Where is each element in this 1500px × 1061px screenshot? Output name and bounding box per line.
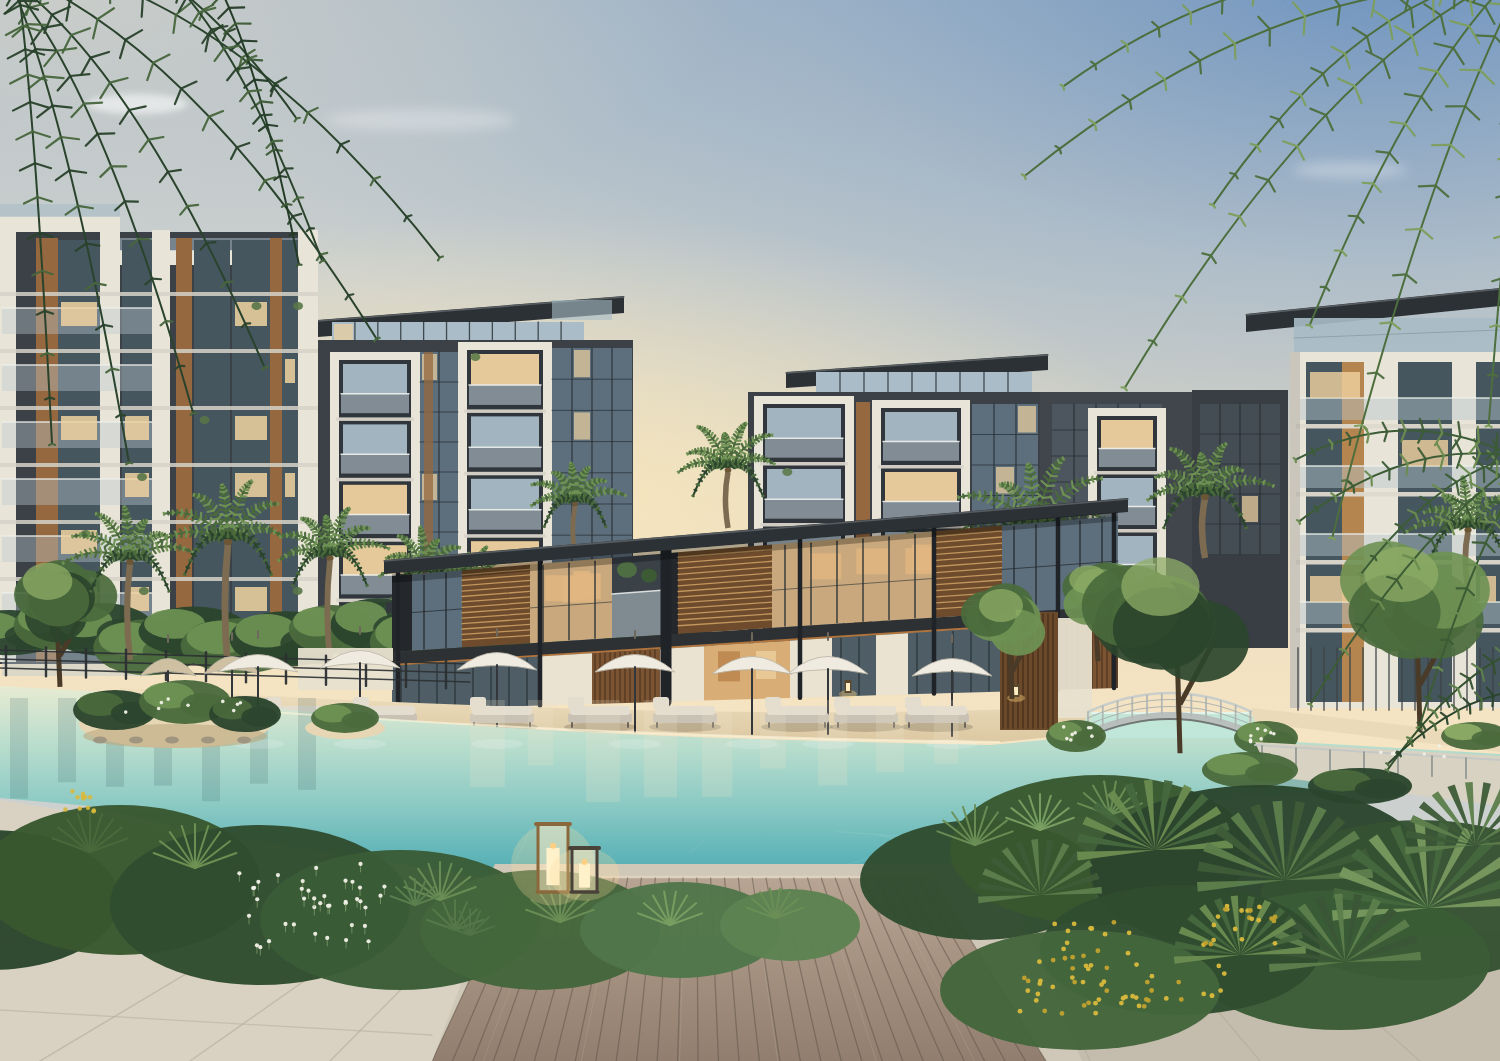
palm-leaflet — [1025, 478, 1031, 480]
floor-slab — [1094, 471, 1160, 475]
palm-leaflet — [108, 561, 110, 565]
palm-leaflet — [1254, 478, 1256, 481]
palm-leaflet — [1490, 3, 1500, 4]
palm-leaflet — [754, 454, 756, 458]
white-flower — [322, 894, 326, 898]
palm-leaflet — [298, 573, 299, 574]
palm-leaflet — [401, 537, 402, 538]
palm-leaflet — [1237, 467, 1238, 469]
palm-leaflet — [220, 497, 225, 498]
palm-leaflet — [601, 479, 602, 480]
yellow-flower — [1111, 920, 1116, 925]
yellow-flower — [81, 796, 85, 800]
palm-leaflet — [123, 531, 128, 533]
palm-leaflet — [1239, 476, 1240, 481]
palm-leaflet — [98, 133, 115, 134]
balcony-glass — [612, 590, 662, 638]
cloud — [1292, 162, 1408, 178]
palm-leaflet — [256, 544, 260, 545]
palm-leaflet — [697, 427, 698, 428]
palm-leaflet — [703, 475, 704, 477]
palm-crown — [126, 559, 134, 565]
balcony-glass — [341, 515, 409, 534]
palm-leaflet — [274, 530, 276, 532]
yellow-flower — [1179, 997, 1184, 1002]
palm-leaflet — [1268, 483, 1269, 484]
palm-leaflet — [338, 547, 339, 552]
palm-leaflet — [1072, 481, 1073, 487]
palm-leaflet — [1222, 0, 1223, 13]
yellow-flower — [88, 795, 92, 799]
palm-leaflet — [194, 554, 196, 556]
palm-leaflet — [1207, 488, 1208, 493]
palm-leaflet — [122, 523, 127, 524]
palm-leaflet — [1178, 454, 1181, 456]
palm-leaflet — [607, 488, 608, 491]
white-flower — [247, 914, 251, 918]
palm-leaflet — [345, 531, 347, 536]
white-flower — [1070, 733, 1074, 737]
palm-leaflet — [1172, 450, 1173, 451]
palm-leaflet — [618, 492, 619, 493]
palm-leaflet — [123, 514, 126, 515]
palm-leaflet — [301, 568, 302, 570]
yellow-flower — [1164, 996, 1169, 1001]
palm-trunk — [1202, 499, 1205, 558]
palm-leaflet — [202, 502, 206, 504]
yellow-flower — [78, 806, 82, 810]
palm-leaflet — [324, 522, 328, 523]
lit-window — [1310, 372, 1360, 398]
palm-leaflet — [308, 524, 311, 525]
palm-leaflet — [1470, 522, 1471, 526]
palm-leaflet — [1249, 476, 1251, 480]
palm-leaflet — [187, 205, 198, 206]
palm-leaflet — [457, 546, 458, 547]
balcony-plant — [139, 587, 149, 595]
palm-leaflet — [394, 556, 395, 558]
daybed-backrest — [568, 697, 584, 709]
palm-leaflet — [99, 516, 101, 517]
palm-leaflet — [367, 527, 368, 528]
palm-leaflet — [1461, 489, 1465, 490]
yellow-flower — [1065, 940, 1070, 945]
palm-leaflet — [50, 397, 55, 399]
palm-leaflet — [256, 505, 257, 510]
palm-leaflet — [147, 534, 148, 539]
palm-trunk — [225, 544, 228, 668]
white-flower — [382, 884, 386, 888]
floor-slab — [0, 406, 318, 410]
yellow-flower — [1119, 1001, 1124, 1006]
palm-leaflet — [1353, 486, 1354, 493]
yellow-flower — [70, 789, 74, 793]
palm-leaflet — [132, 553, 133, 558]
white-flower — [251, 886, 255, 890]
palm-leaflet — [120, 415, 125, 416]
palm-leaflet — [604, 488, 605, 491]
palm-leaflet — [197, 549, 199, 552]
interior-light — [563, 577, 597, 603]
palm-leaflet — [1176, 504, 1178, 506]
palm-leaflet — [1490, 502, 1500, 503]
palm-leaflet — [597, 488, 598, 492]
palm-leaflet — [199, 498, 201, 500]
palm-leaflet — [108, 528, 113, 529]
palm-leaflet — [290, 535, 291, 537]
rock — [129, 737, 143, 744]
white-flower — [1422, 752, 1426, 756]
palm-leaflet — [204, 504, 209, 506]
balcony-plant — [252, 302, 262, 310]
palm-leaflet — [745, 441, 747, 446]
palm-trunk — [127, 564, 130, 660]
palm-leaflet — [1438, 510, 1440, 513]
palm-leaflet — [700, 451, 702, 454]
palm-leaflet — [122, 527, 127, 528]
lit-window — [125, 416, 149, 440]
palm-leaflet — [97, 578, 98, 579]
yellow-flower — [1081, 953, 1086, 958]
palm-leaflet — [758, 455, 760, 458]
palm-leaflet — [94, 584, 95, 585]
white-flower — [255, 897, 259, 901]
palm-leaflet — [1200, 60, 1201, 73]
palm-leaflet — [1350, 438, 1351, 445]
palm-leaflet — [722, 440, 726, 441]
palm-leaflet — [247, 483, 248, 485]
palm-leaflet — [569, 470, 572, 471]
palm-leaflet — [699, 428, 700, 429]
palm-leaflet — [1442, 536, 1444, 538]
palm-leaflet — [349, 529, 350, 534]
palm-leaflet — [1025, 474, 1030, 475]
palm-leaflet — [80, 535, 81, 537]
palm-leaflet — [553, 509, 554, 511]
white-flower — [300, 887, 304, 891]
white-flower — [1087, 726, 1091, 730]
palm-leaflet — [1406, 229, 1421, 230]
palm-leaflet — [35, 49, 55, 50]
palm-leaflet — [296, 579, 297, 580]
cloud — [325, 109, 515, 131]
palm-leaflet — [702, 430, 704, 431]
palm-leaflet — [1461, 486, 1465, 487]
palm-leaflet — [155, 563, 158, 564]
palm-leaflet — [117, 555, 119, 560]
yellow-flower — [1239, 908, 1244, 913]
white-flower — [327, 904, 331, 908]
palm-leaflet — [270, 528, 272, 530]
reflection — [726, 739, 778, 749]
palm-leaflet — [220, 489, 223, 490]
palm-leaflet — [543, 484, 544, 486]
white-flower — [363, 905, 367, 909]
palm-leaflet — [553, 473, 554, 474]
palm-leaflet — [1165, 79, 1166, 90]
palm-leaflet — [615, 490, 616, 492]
palm-leaflet — [1349, 216, 1358, 217]
window — [885, 472, 957, 502]
white-flower — [301, 879, 305, 883]
yellow-flower — [1022, 976, 1027, 981]
yellow-flower — [1126, 951, 1131, 956]
palm-leaflet — [112, 535, 118, 536]
palm-leaflet — [254, 80, 267, 81]
palm-leaflet — [564, 488, 569, 489]
white-flower — [366, 939, 370, 943]
white-flower — [1442, 755, 1446, 759]
palm-leaflet — [158, 568, 161, 569]
palm-leaflet — [188, 567, 189, 568]
palm-leaflet — [748, 454, 749, 459]
palm-leaflet — [91, 591, 92, 592]
palm-leaflet — [191, 560, 192, 561]
window — [343, 424, 407, 454]
palm-leaflet — [1175, 488, 1176, 493]
palm-leaflet — [1432, 521, 1433, 525]
candle-flame — [550, 843, 556, 849]
palm-leaflet — [748, 468, 751, 469]
palm-leaflet — [1492, 696, 1493, 706]
palm-crown — [224, 539, 232, 545]
yellow-flower — [1208, 942, 1213, 947]
palm-leaflet — [1406, 463, 1407, 475]
palm-leaflet — [704, 432, 707, 433]
palm-leaflet — [1478, 427, 1479, 442]
yellow-flower — [1121, 996, 1126, 1001]
palm-leaflet — [1240, 469, 1241, 470]
tree-canopy — [23, 563, 73, 600]
palm-leaflet — [444, 547, 445, 551]
white-flower — [302, 896, 306, 900]
palm-leaflet — [1159, 28, 1160, 37]
yellow-flower — [1216, 914, 1221, 919]
garden-wall — [1058, 618, 1092, 718]
balcony-plant — [782, 468, 792, 476]
window — [885, 412, 957, 442]
palm-leaflet — [144, 520, 145, 522]
white-flower — [1272, 732, 1276, 736]
palm-leaflet — [91, 553, 92, 557]
reflection — [10, 698, 28, 799]
palm-leaflet — [1492, 531, 1495, 532]
palm-leaflet — [344, 511, 345, 513]
balcony-glass — [341, 454, 409, 473]
palm-leaflet — [84, 103, 102, 104]
palm-leaflet — [576, 497, 577, 501]
wood-accent — [270, 238, 282, 662]
palm-leaflet — [1220, 446, 1221, 448]
palm-leaflet — [1004, 485, 1005, 487]
palm-leaflet — [407, 215, 412, 217]
palm-leaflet — [1198, 463, 1203, 464]
yellow-flower — [1150, 974, 1155, 979]
palm-leaflet — [1095, 65, 1096, 70]
parapet — [0, 216, 120, 232]
palm-leaflet — [403, 540, 405, 541]
palm-leaflet — [98, 515, 99, 516]
palm-leaflet — [590, 499, 593, 501]
yellow-flower — [1070, 955, 1075, 960]
palm-leaflet — [1184, 493, 1185, 497]
white-flower — [292, 922, 296, 926]
yellow-flower — [1273, 941, 1278, 946]
palm-leaflet — [1213, 205, 1215, 208]
balcony-plant — [137, 473, 147, 481]
yellow-flower — [1037, 981, 1042, 986]
floor-slab — [336, 478, 414, 482]
white-flower — [1259, 737, 1263, 741]
palm-leaflet — [206, 507, 211, 508]
yellow-flower — [1066, 929, 1071, 934]
palm-leaflet — [1273, 485, 1274, 486]
palm-leaflet — [179, 545, 180, 547]
palm-leaflet — [364, 526, 365, 528]
palm-leaflet — [297, 118, 300, 119]
palm-leaflet — [1182, 496, 1184, 500]
lit-window — [285, 359, 295, 383]
palm-leaflet — [702, 462, 703, 466]
palm-leaflet — [364, 539, 365, 543]
palm-leaflet — [206, 538, 207, 543]
palm-leaflet — [1481, 521, 1495, 522]
palm-leaflet — [152, 279, 161, 280]
palm-leaflet — [1200, 454, 1201, 455]
yellow-flower — [1210, 993, 1215, 998]
palm-leaflet — [1179, 500, 1181, 503]
candle-flame — [582, 859, 588, 865]
palm-leaflet — [253, 540, 257, 542]
floor-slab — [878, 465, 964, 469]
palm-leaflet — [332, 550, 333, 554]
palm-leaflet — [1223, 468, 1224, 473]
palm-leaflet — [1025, 176, 1026, 179]
white-flower — [306, 889, 310, 893]
balcony-glass — [765, 438, 843, 458]
pavilion-wall — [876, 633, 908, 695]
yellow-flower — [1081, 980, 1086, 985]
yellow-flower — [1176, 980, 1181, 985]
palm-leaflet — [1187, 470, 1193, 471]
palm-leaflet — [1451, 503, 1455, 504]
palm-leaflet — [546, 484, 548, 487]
palm-leaflet — [411, 552, 416, 553]
yellow-flower — [1223, 907, 1228, 912]
yellow-flower — [1104, 965, 1109, 970]
palm-leaflet — [369, 528, 370, 529]
palm-leaflet — [1435, 724, 1436, 730]
floor-slab — [0, 463, 318, 467]
palm-leaflet — [438, 550, 439, 554]
reflection — [644, 700, 677, 797]
palm-leaflet — [739, 427, 741, 429]
palm-leaflet — [210, 514, 216, 515]
yellow-flower — [1026, 978, 1031, 983]
palm-leaflet — [1411, 742, 1412, 745]
palm-leaflet — [170, 543, 172, 546]
palm-leaflet — [413, 555, 418, 556]
palm-leaflet — [249, 481, 250, 482]
palm-leaflet — [1170, 449, 1171, 450]
bush — [1355, 779, 1407, 799]
palm-leaflet — [144, 535, 146, 540]
white-flower — [258, 945, 262, 949]
balcony-glass — [883, 442, 959, 461]
white-flower — [313, 932, 317, 936]
palm-leaflet — [201, 499, 204, 501]
floor-slab — [464, 409, 546, 413]
yellow-flower — [1201, 992, 1206, 997]
yellow-flower — [1070, 975, 1075, 980]
palm-leaflet — [220, 492, 223, 493]
palm-leaflet — [1189, 474, 1195, 475]
bush — [342, 712, 376, 729]
palm-leaflet — [1198, 466, 1203, 468]
rock — [201, 737, 215, 744]
palm-leaflet — [717, 463, 718, 467]
yellow-flower — [1060, 1011, 1065, 1016]
white-flower — [1437, 744, 1441, 748]
palm-leaflet — [399, 556, 401, 559]
floor-slab — [464, 472, 546, 476]
palm-leaflet — [1164, 528, 1165, 529]
yellow-flower — [1142, 1004, 1147, 1009]
palm-leaflet — [1428, 522, 1429, 526]
yellow-flower — [1093, 1001, 1098, 1006]
palm-leaflet — [752, 437, 753, 441]
palm-leaflet — [123, 511, 126, 512]
palm-leaflet — [1304, 16, 1305, 34]
palm-leaflet — [194, 495, 195, 496]
palm-leaflet — [549, 516, 550, 517]
palm-leaflet — [711, 467, 712, 471]
white-flower — [256, 880, 260, 884]
palm-leaflet — [1368, 373, 1377, 374]
palm-leaflet — [113, 557, 114, 562]
palm-leaflet — [129, 463, 132, 464]
white-flower — [350, 880, 354, 884]
palm-leaflet — [552, 497, 553, 501]
architectural-rendering — [0, 0, 1500, 1061]
palm-leaflet — [1454, 509, 1459, 510]
palm-leaflet — [735, 459, 736, 463]
palm-leaflet — [237, 529, 238, 534]
floor-slab — [336, 417, 414, 421]
palm-leaflet — [368, 540, 369, 543]
palm-leaflet — [1181, 459, 1185, 460]
reflection — [760, 700, 786, 769]
palm-leaflet — [142, 0, 143, 17]
palm-leaflet — [245, 485, 247, 487]
palm-leaflet — [306, 521, 308, 522]
white-flower — [1090, 734, 1094, 738]
yellow-flower — [1239, 937, 1244, 942]
pool-courtyard-render: Twilight architectural rendering of a mo… — [0, 0, 1500, 1061]
roof-balustrade — [552, 300, 612, 320]
balcony-glass — [2, 365, 152, 391]
palm-leaflet — [177, 513, 178, 516]
palm-leaflet — [186, 532, 187, 537]
balcony-glass — [469, 447, 541, 467]
palm-leaflet — [1234, 503, 1237, 504]
palm-leaflet — [1043, 497, 1051, 498]
palm-leaflet — [1447, 529, 1449, 532]
tree-canopy — [979, 589, 1023, 622]
palm-leaflet — [212, 535, 213, 540]
palm-leaflet — [1434, 551, 1435, 552]
palm-leaflet — [1166, 474, 1167, 477]
